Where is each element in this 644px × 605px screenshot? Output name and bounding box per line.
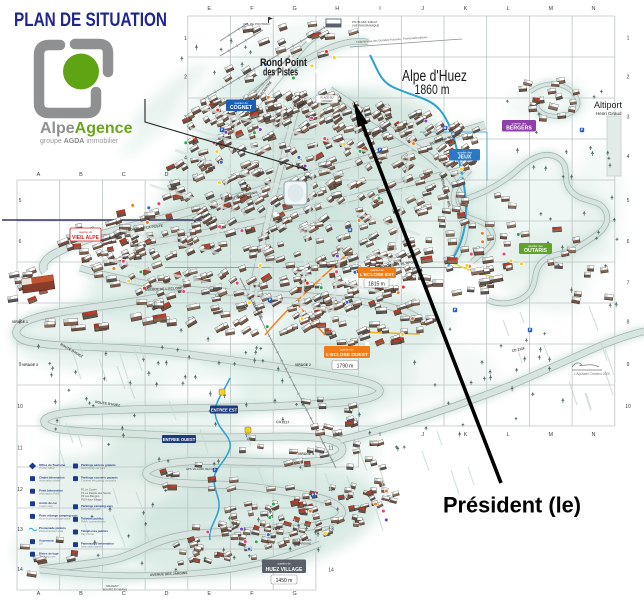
svg-text:1790 m: 1790 m bbox=[337, 363, 354, 369]
svg-text:JEUX: JEUX bbox=[458, 155, 472, 161]
svg-text:VUE PANORAMIQUE: VUE PANORAMIQUE bbox=[352, 24, 379, 28]
svg-text:Motorhome drainage point: Motorhome drainage point bbox=[39, 517, 71, 521]
svg-text:L: L bbox=[507, 6, 510, 12]
svg-text:C: C bbox=[122, 172, 126, 178]
svg-text:Multi storey car park: Multi storey car park bbox=[81, 466, 106, 470]
svg-text:ENTREE OUEST: ENTREE OUEST bbox=[163, 437, 196, 442]
svg-text:4: 4 bbox=[184, 156, 187, 162]
svg-text:BERGERS: BERGERS bbox=[506, 126, 532, 132]
svg-text:VIRAGE 4: VIRAGE 4 bbox=[298, 452, 314, 456]
svg-text:Sledging runs: Sledging runs bbox=[39, 554, 56, 558]
svg-text:12: 12 bbox=[17, 487, 23, 493]
svg-text:N: N bbox=[592, 6, 596, 12]
svg-text:VIRAGE 1: VIRAGE 1 bbox=[12, 320, 28, 324]
svg-text:10: 10 bbox=[17, 404, 23, 410]
svg-text:Information Point: Information Point bbox=[39, 491, 60, 495]
svg-text:E: E bbox=[207, 591, 211, 597]
svg-text:M: M bbox=[444, 126, 447, 130]
svg-text:DE SARENNE: DE SARENNE bbox=[293, 542, 311, 546]
svg-text:H: H bbox=[335, 6, 339, 12]
svg-text:6: 6 bbox=[19, 239, 22, 245]
svg-text:10: 10 bbox=[625, 404, 631, 410]
svg-text:Information chalet: Information chalet bbox=[39, 479, 61, 483]
svg-text:OUTARIS: OUTARIS bbox=[524, 248, 547, 254]
svg-text:J: J bbox=[421, 432, 424, 438]
svg-text:P10 Huez Village: P10 Huez Village bbox=[81, 497, 102, 501]
svg-text:J: J bbox=[421, 6, 424, 12]
svg-text:5: 5 bbox=[627, 198, 630, 204]
svg-text:4: 4 bbox=[627, 154, 630, 160]
svg-text:14: 14 bbox=[17, 567, 23, 573]
svg-text:Lift: Lift bbox=[39, 542, 43, 546]
svg-text:6: 6 bbox=[627, 239, 630, 245]
svg-text:COGNET: COGNET bbox=[321, 99, 333, 103]
svg-text:9: 9 bbox=[627, 362, 630, 368]
svg-text:VIEIL ALPE: VIEIL ALPE bbox=[72, 235, 100, 241]
svg-text:Covered fee paying car parks: Covered fee paying car parks bbox=[81, 479, 117, 483]
svg-text:2: 2 bbox=[184, 75, 187, 81]
svg-text:1860 m: 1860 m bbox=[415, 81, 450, 97]
svg-text:A: A bbox=[37, 591, 41, 597]
svg-text:quartier de: quartier de bbox=[277, 562, 291, 566]
svg-text:D: D bbox=[165, 172, 169, 178]
svg-text:HPS VILLARD RECULAS: HPS VILLARD RECULAS bbox=[186, 467, 218, 471]
svg-text:L'Alpinade Création 2005: L'Alpinade Création 2005 bbox=[574, 372, 610, 376]
svg-text:COL DE POUTRAN: COL DE POUTRAN bbox=[243, 22, 270, 26]
svg-text:3: 3 bbox=[627, 115, 630, 121]
svg-text:2: 2 bbox=[627, 75, 630, 81]
svg-text:quartier de: quartier de bbox=[370, 268, 384, 272]
svg-text:Public conveniences: Public conveniences bbox=[81, 520, 106, 524]
svg-text:A: A bbox=[37, 172, 41, 178]
svg-text:ENTREE EST: ENTREE EST bbox=[211, 408, 238, 413]
svg-text:7: 7 bbox=[19, 281, 22, 287]
svg-text:8: 8 bbox=[627, 320, 630, 326]
svg-text:COGNET: COGNET bbox=[230, 105, 253, 111]
svg-text:11: 11 bbox=[328, 446, 333, 452]
svg-text:AlpeAgence: AlpeAgence bbox=[40, 120, 133, 137]
svg-text:M: M bbox=[549, 6, 554, 12]
svg-text:Pay phone: Pay phone bbox=[81, 532, 94, 536]
svg-text:L: L bbox=[507, 432, 510, 438]
svg-text:13: 13 bbox=[328, 527, 334, 533]
svg-text:B: B bbox=[79, 591, 83, 597]
svg-text:E: E bbox=[207, 6, 211, 12]
svg-text:des Pistes: des Pistes bbox=[263, 67, 298, 79]
svg-text:M: M bbox=[349, 228, 352, 232]
svg-text:K: K bbox=[464, 432, 468, 438]
svg-text:Pedestrianized area: Pedestrianized area bbox=[39, 529, 63, 533]
svg-text:Information panels: Information panels bbox=[81, 545, 104, 549]
svg-text:G: G bbox=[292, 591, 296, 597]
svg-text:N: N bbox=[592, 432, 596, 438]
svg-text:B: B bbox=[79, 172, 83, 178]
svg-text:11: 11 bbox=[17, 446, 22, 452]
svg-text:VIRAGE 3: VIRAGE 3 bbox=[22, 363, 38, 367]
svg-text:groupe AGDA immobilier: groupe AGDA immobilier bbox=[40, 138, 119, 145]
svg-text:Altiport: Altiport bbox=[594, 100, 623, 110]
svg-text:13: 13 bbox=[17, 527, 23, 533]
svg-text:14: 14 bbox=[328, 568, 334, 574]
svg-text:BOURG D'OISANS: BOURG D'OISANS bbox=[103, 588, 127, 592]
svg-text:L'ECLOSE EST: L'ECLOSE EST bbox=[360, 272, 395, 278]
svg-text:H: H bbox=[335, 432, 339, 438]
svg-text:1: 1 bbox=[627, 36, 630, 42]
svg-text:VIRAGE 2: VIRAGE 2 bbox=[295, 363, 311, 367]
svg-text:Coach stop: Coach stop bbox=[39, 504, 53, 508]
svg-text:quartier de: quartier de bbox=[340, 348, 354, 352]
svg-text:5: 5 bbox=[19, 198, 22, 204]
svg-text:PLAN DE SITUATION: PLAN DE SITUATION bbox=[14, 9, 167, 31]
svg-text:Tourist Office: Tourist Office bbox=[39, 466, 55, 470]
svg-text:1: 1 bbox=[184, 36, 187, 42]
svg-text:HUEZ VILLAGE: HUEZ VILLAGE bbox=[266, 567, 303, 573]
svg-text:G: G bbox=[292, 6, 296, 12]
svg-text:C: C bbox=[122, 591, 126, 597]
svg-text:Président (le): Président (le) bbox=[443, 493, 581, 518]
svg-text:Henri Giraud: Henri Giraud bbox=[596, 111, 622, 116]
svg-text:quartier du: quartier du bbox=[79, 230, 93, 234]
svg-text:12: 12 bbox=[328, 487, 334, 493]
svg-text:D: D bbox=[165, 591, 169, 597]
svg-text:1815 m: 1815 m bbox=[368, 281, 385, 287]
svg-text:1450 m: 1450 m bbox=[276, 578, 293, 584]
svg-text:Motorhome park: Motorhome park bbox=[81, 507, 101, 511]
svg-text:7: 7 bbox=[627, 281, 630, 287]
svg-text:K: K bbox=[464, 6, 468, 12]
svg-text:CD 2117: CD 2117 bbox=[276, 420, 289, 424]
svg-text:3: 3 bbox=[184, 115, 187, 121]
svg-text:L'ECLOSE OUEST: L'ECLOSE OUEST bbox=[326, 352, 368, 358]
svg-text:M: M bbox=[549, 432, 554, 438]
